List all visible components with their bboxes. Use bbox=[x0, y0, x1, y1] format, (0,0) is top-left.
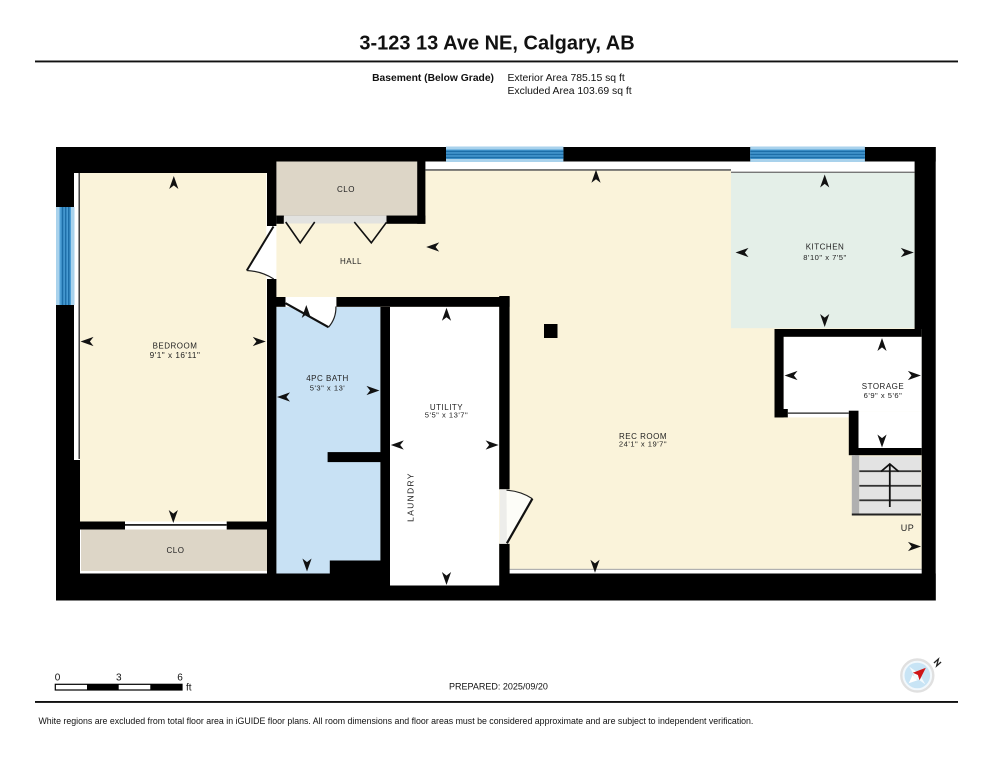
svg-text:STORAGE: STORAGE bbox=[862, 382, 904, 391]
svg-text:8'10" x 7'5": 8'10" x 7'5" bbox=[803, 253, 846, 262]
svg-text:Exterior Area 785.15 sq ft: Exterior Area 785.15 sq ft bbox=[508, 73, 625, 84]
svg-text:HALL: HALL bbox=[340, 257, 362, 266]
svg-text:4PC BATH: 4PC BATH bbox=[306, 374, 349, 383]
svg-text:9'1" x 16'11": 9'1" x 16'11" bbox=[150, 351, 201, 360]
svg-text:Excluded Area 103.69 sq ft: Excluded Area 103.69 sq ft bbox=[508, 86, 632, 97]
svg-text:5'3" x 13': 5'3" x 13' bbox=[310, 384, 346, 393]
svg-text:ft: ft bbox=[186, 683, 192, 694]
svg-text:24'1" x 19'7": 24'1" x 19'7" bbox=[619, 440, 667, 449]
svg-text:BEDROOM: BEDROOM bbox=[153, 342, 198, 351]
svg-text:3-123 13 Ave NE, Calgary, AB: 3-123 13 Ave NE, Calgary, AB bbox=[359, 33, 634, 55]
svg-text:CLO: CLO bbox=[337, 185, 355, 194]
svg-text:5'5" x 13'7": 5'5" x 13'7" bbox=[425, 411, 468, 420]
svg-text:6: 6 bbox=[177, 673, 183, 684]
svg-text:LAUNDRY: LAUNDRY bbox=[406, 472, 416, 522]
svg-text:Basement (Below Grade): Basement (Below Grade) bbox=[372, 73, 494, 84]
svg-text:KITCHEN: KITCHEN bbox=[806, 243, 845, 252]
svg-text:UP: UP bbox=[901, 523, 915, 533]
svg-text:PREPARED: 2025/09/20: PREPARED: 2025/09/20 bbox=[449, 682, 548, 692]
svg-text:0: 0 bbox=[55, 673, 61, 684]
svg-text:6'9" x 5'6": 6'9" x 5'6" bbox=[864, 391, 903, 400]
svg-text:3: 3 bbox=[116, 673, 122, 684]
svg-text:CLO: CLO bbox=[167, 546, 185, 555]
svg-text:White regions are excluded fro: White regions are excluded from total fl… bbox=[39, 716, 754, 726]
